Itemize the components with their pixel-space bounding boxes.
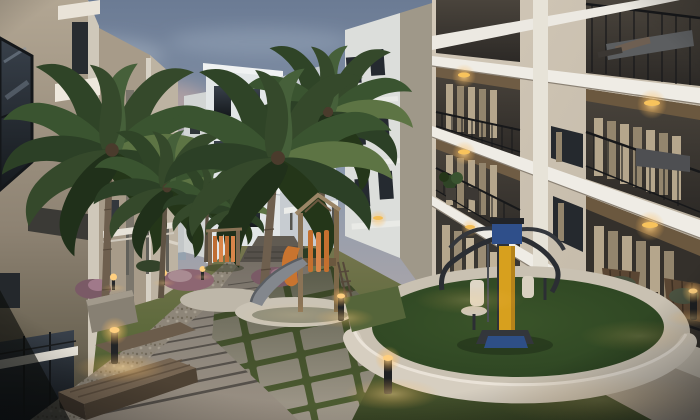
courtyard-rendering (0, 0, 700, 420)
scene-canvas (0, 0, 700, 420)
vignette (0, 0, 700, 420)
